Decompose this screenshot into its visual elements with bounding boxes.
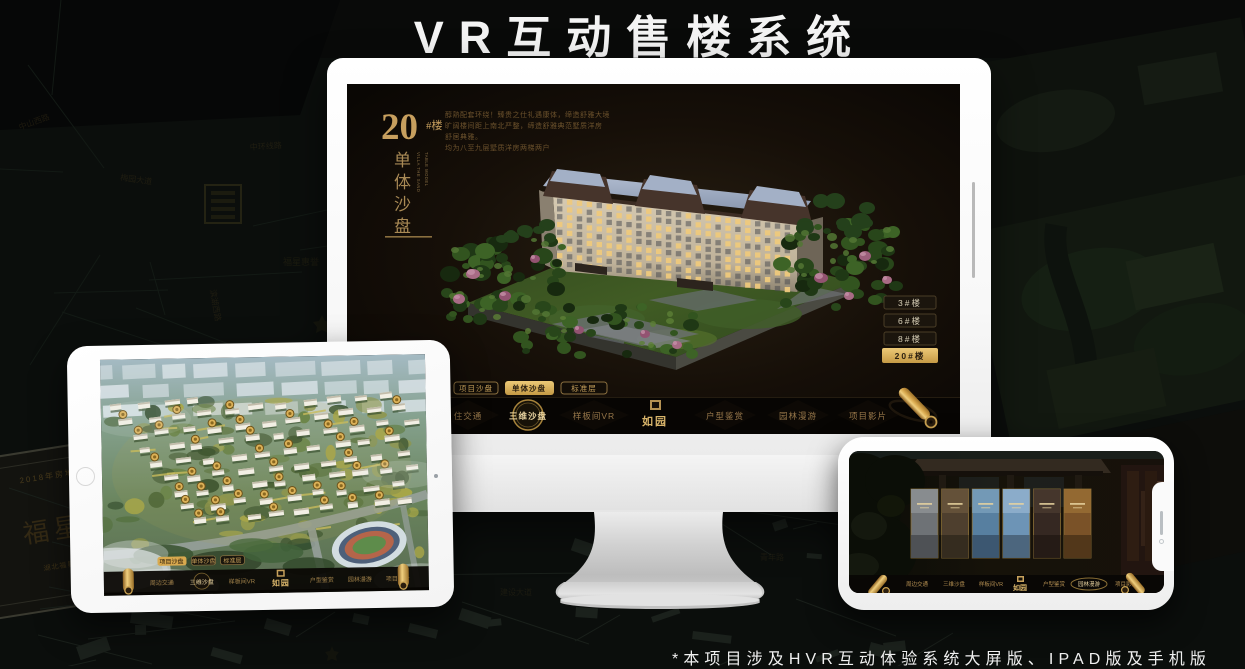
svg-text:醇熟配套环绕！臻贵之仕礼遇康体，缔造舒雅大境: 醇熟配套环绕！臻贵之仕礼遇康体，缔造舒雅大境 [445, 110, 610, 119]
svg-text:住交通: 住交通 [454, 411, 483, 421]
svg-text:舒居典雅。: 舒居典雅。 [445, 132, 483, 141]
svg-text:项目影片: 项目影片 [849, 411, 887, 421]
svg-text:沙: 沙 [394, 195, 411, 214]
svg-text:20#楼: 20#楼 [895, 351, 926, 361]
svg-text:盘: 盘 [394, 217, 411, 236]
svg-text:如园: 如园 [272, 578, 290, 588]
svg-text:项目沙盘: 项目沙盘 [459, 383, 493, 393]
svg-text:如园: 如园 [642, 414, 668, 428]
svg-text:单体沙盘: 单体沙盘 [512, 383, 546, 393]
svg-text:6#楼: 6#楼 [898, 316, 922, 326]
svg-text:户型鉴赏: 户型鉴赏 [1043, 580, 1066, 588]
svg-text:园林漫游: 园林漫游 [779, 411, 817, 421]
svg-text:20: 20 [381, 107, 418, 148]
svg-text:福星惠誉: 福星惠誉 [283, 256, 319, 267]
svg-text:样板间VR: 样板间VR [573, 411, 615, 421]
svg-text:如园: 如园 [1013, 583, 1027, 592]
svg-text:标准层: 标准层 [571, 383, 597, 393]
svg-text:户型鉴赏: 户型鉴赏 [706, 411, 744, 421]
svg-text:三维沙盘: 三维沙盘 [943, 580, 966, 588]
svg-text:三维沙盘: 三维沙盘 [509, 411, 547, 421]
svg-text:样板间VR: 样板间VR [979, 580, 1003, 588]
svg-text:3#楼: 3#楼 [898, 298, 922, 308]
svg-text:旷阔楼间距上南北严整，缔造舒雅典范墅质洋房: 旷阔楼间距上南北严整，缔造舒雅典范墅质洋房 [445, 121, 603, 130]
svg-text:园林漫游: 园林漫游 [1078, 580, 1101, 588]
svg-text:TABLE MODEL: TABLE MODEL [424, 152, 429, 187]
svg-text:均为八至九层墅质洋房两梯两户: 均为八至九层墅质洋房两梯两户 [445, 143, 550, 152]
svg-text:单: 单 [394, 151, 411, 170]
svg-text:体: 体 [394, 173, 411, 192]
svg-text:8#楼: 8#楼 [898, 334, 922, 344]
svg-text:周边交通: 周边交通 [906, 580, 929, 588]
svg-text:#楼: #楼 [426, 118, 443, 132]
svg-text:VILLA THE SAND: VILLA THE SAND [416, 152, 421, 192]
